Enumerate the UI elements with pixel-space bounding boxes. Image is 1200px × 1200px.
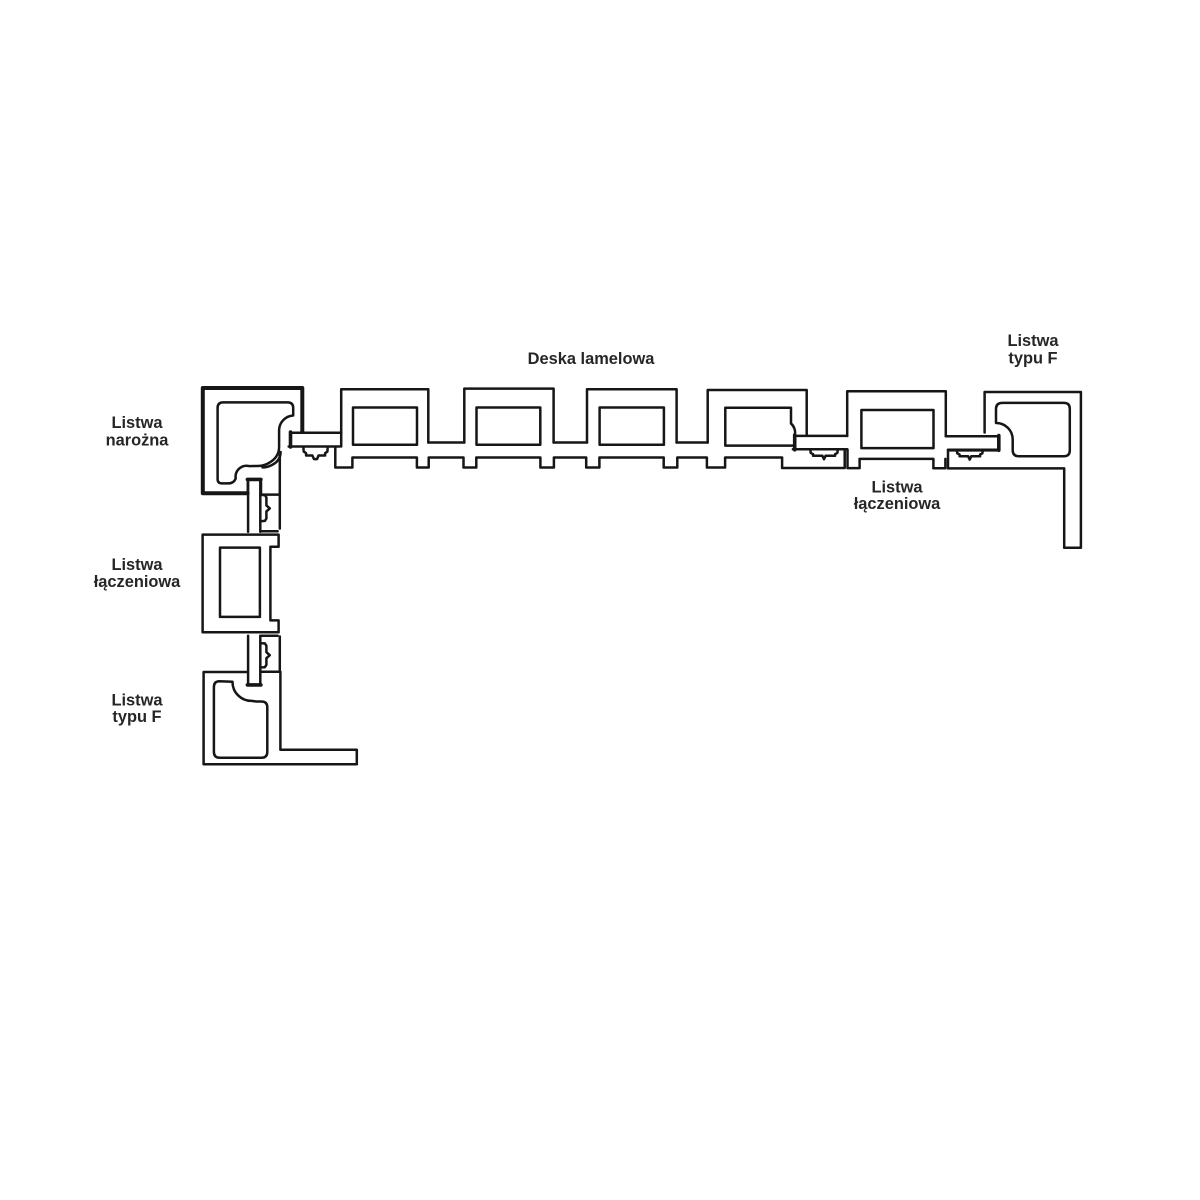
svg-text:Listwa: Listwa [111, 556, 163, 574]
svg-text:Deska lamelowa: Deska lamelowa [528, 350, 656, 368]
svg-text:typu F: typu F [1008, 350, 1057, 368]
svg-text:typu F: typu F [112, 708, 161, 726]
svg-text:Listwa: Listwa [111, 414, 163, 432]
svg-text:łączeniowa: łączeniowa [94, 573, 181, 591]
svg-text:Listwa: Listwa [111, 692, 163, 710]
svg-text:Listwa: Listwa [1007, 332, 1059, 350]
svg-text:narożna: narożna [106, 432, 170, 450]
svg-text:Listwa: Listwa [871, 479, 923, 497]
svg-text:łączeniowa: łączeniowa [854, 495, 941, 513]
